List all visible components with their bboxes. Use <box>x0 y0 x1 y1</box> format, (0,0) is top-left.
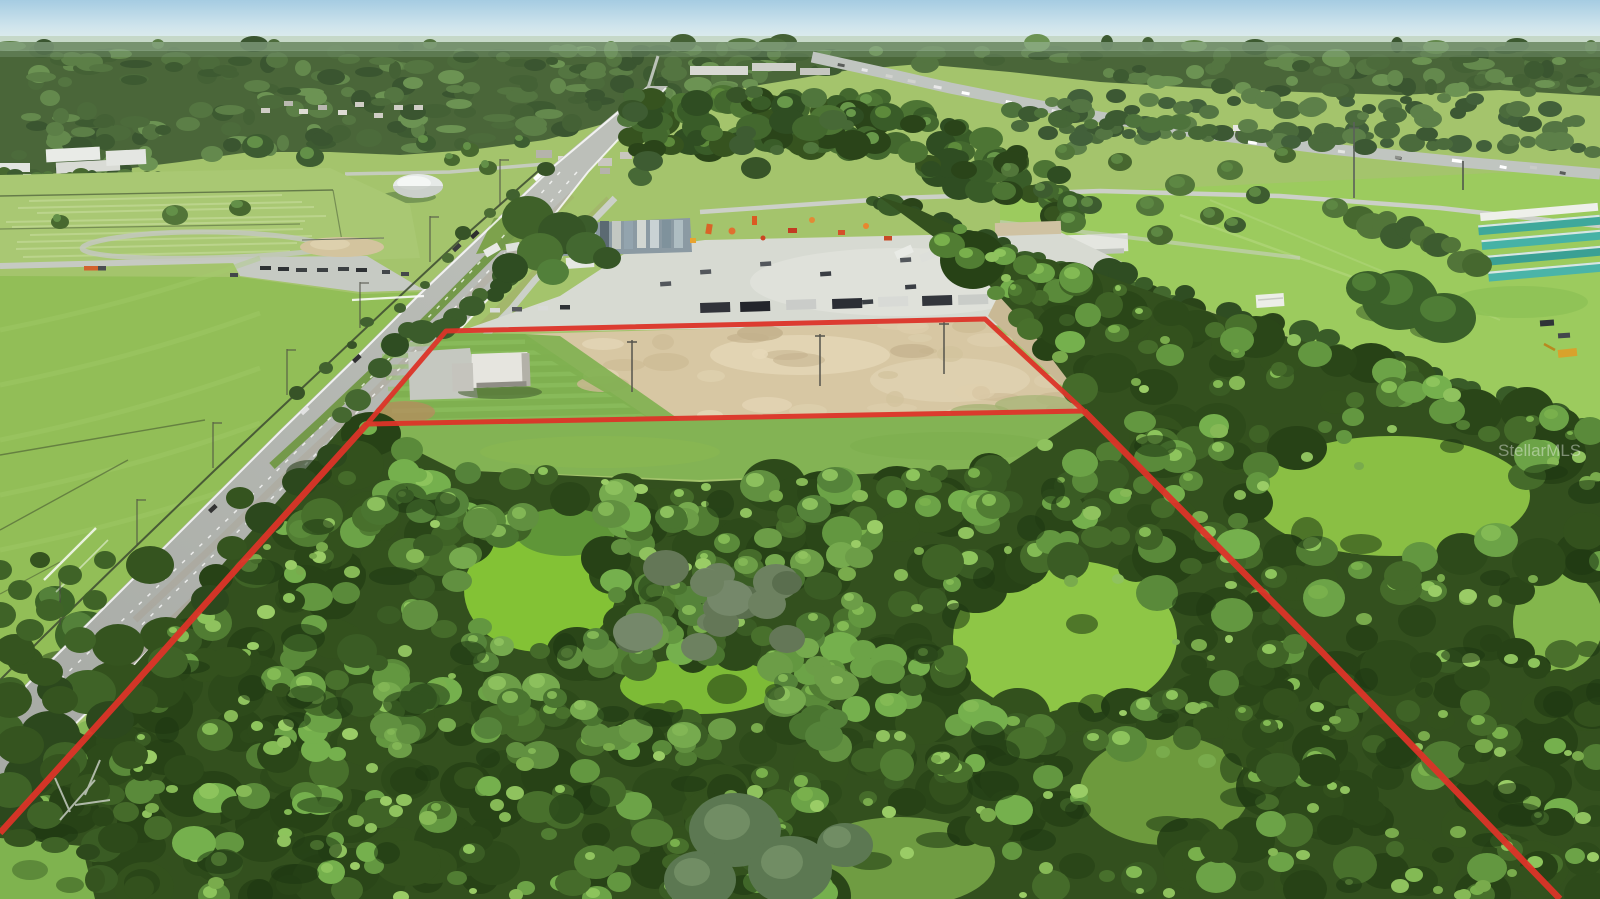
svg-text:StellarMLS: StellarMLS <box>1498 441 1581 460</box>
